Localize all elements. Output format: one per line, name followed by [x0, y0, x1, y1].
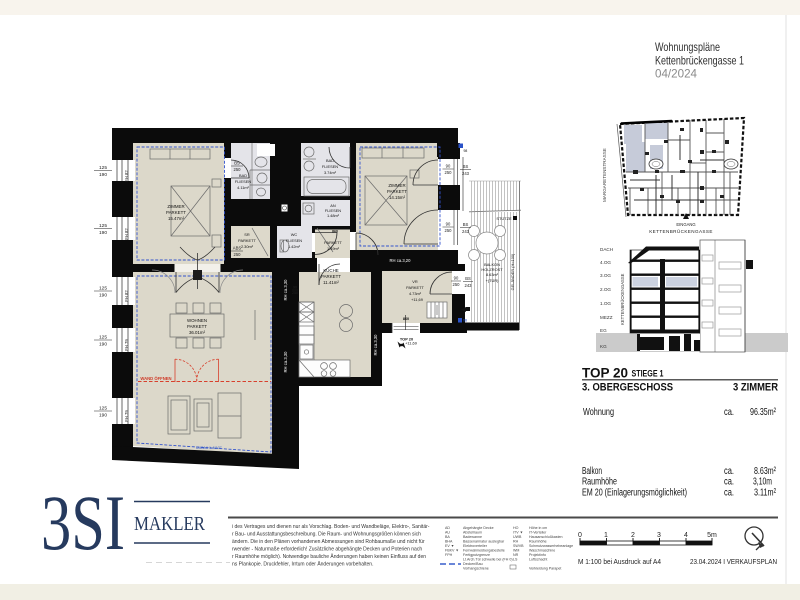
- svg-text:ZIMMER: ZIMMER: [388, 183, 405, 188]
- svg-text:Raumhöhe: Raumhöhe: [582, 477, 617, 488]
- svg-text:FLIESEN: FLIESEN: [235, 179, 251, 184]
- svg-text:PARKETT: PARKETT: [321, 274, 341, 279]
- svg-text:EV ▼: EV ▼: [445, 544, 454, 548]
- svg-text:WOHNEN: WOHNEN: [187, 318, 207, 323]
- svg-text:LS: LS: [513, 558, 518, 562]
- svg-text:4: 4: [684, 532, 688, 539]
- svg-text:243: 243: [462, 229, 470, 234]
- svg-text:Wohnungspläne: Wohnungspläne: [655, 40, 720, 54]
- svg-text:3. OBERGESCHOSS: 3. OBERGESCHOSS: [582, 382, 673, 394]
- svg-text:BAD: BAD: [239, 173, 247, 178]
- svg-text:23.04.2024 I VERKAUFSPLAN: 23.04.2024 I VERKAUFSPLAN: [690, 557, 777, 566]
- svg-text:1.OG: 1.OG: [600, 301, 611, 306]
- svg-text:KETTENBRÜCKENGASSE: KETTENBRÜCKENGASSE: [649, 228, 713, 234]
- svg-text:90: 90: [293, 286, 297, 290]
- svg-text:Decken/Bau: Decken/Bau: [463, 562, 483, 566]
- svg-text:PARKETT: PARKETT: [187, 324, 207, 329]
- svg-text:MEZZ: MEZZ: [600, 315, 613, 320]
- svg-text:UWB: UWB: [513, 535, 522, 539]
- svg-text:i des Vertrages und dienen nur: i des Vertrages und dienen nur als Vorsc…: [232, 524, 430, 530]
- svg-text:PARKETT: PARKETT: [406, 285, 424, 290]
- svg-text:243: 243: [462, 171, 470, 176]
- svg-text:Luftschacht: Luftschacht: [529, 558, 547, 562]
- svg-text:190: 190: [99, 172, 107, 178]
- svg-text:250: 250: [453, 282, 461, 287]
- svg-text:125: 125: [99, 286, 107, 292]
- svg-text:11.41m²: 11.41m²: [323, 280, 339, 285]
- svg-text:3.74m²: 3.74m²: [324, 170, 337, 175]
- svg-text:GELÄNDER (H=100): GELÄNDER (H=100): [510, 253, 515, 290]
- svg-text:UMBAU lt. MA37: UMBAU lt. MA37: [196, 446, 222, 450]
- svg-text:ändern. Die in den Plänen vorh: ändern. Die in den Plänen vorhandenen Ab…: [232, 539, 425, 545]
- svg-text:RH ca.3,30: RH ca.3,30: [373, 334, 378, 356]
- svg-text:ca.: ca.: [724, 466, 734, 477]
- svg-text:98: 98: [464, 149, 468, 153]
- svg-text:04/2024: 04/2024: [655, 67, 697, 81]
- svg-text:AD: AD: [445, 526, 450, 530]
- svg-text:ns Plankopie. Druckfehler, Irr: ns Plankopie. Druckfehler, Irrtum oder Ä…: [232, 561, 373, 568]
- svg-text:FH 82: FH 82: [124, 290, 129, 302]
- svg-text:8.63m²: 8.63m²: [754, 466, 776, 477]
- svg-text:3SI: 3SI: [41, 479, 125, 566]
- svg-text:EINGANG: EINGANG: [676, 222, 695, 227]
- svg-text:Bassenarmatur auslegbar: Bassenarmatur auslegbar: [463, 540, 505, 544]
- svg-text:MARGARETENSTRASSE: MARGARETENSTRASSE: [602, 148, 607, 202]
- svg-text:Wohnung: Wohnung: [583, 406, 614, 418]
- svg-text:ITV ▼: ITV ▼: [513, 531, 523, 535]
- svg-text:FH 79: FH 79: [124, 339, 129, 351]
- svg-text:125: 125: [99, 335, 107, 341]
- svg-text:250: 250: [234, 252, 242, 257]
- svg-text:ca.: ca.: [724, 477, 734, 488]
- svg-text:Hausanschlußkasten: Hausanschlußkasten: [529, 535, 563, 539]
- svg-text:3 ZIMMER: 3 ZIMMER: [733, 382, 778, 394]
- svg-text:860: 860: [403, 317, 409, 321]
- svg-text:BAD: BAD: [326, 158, 334, 163]
- svg-text:90: 90: [454, 276, 459, 281]
- svg-text:190: 190: [99, 413, 107, 419]
- svg-text:125: 125: [99, 406, 107, 412]
- svg-text:190: 190: [99, 293, 107, 299]
- svg-text:250: 250: [234, 167, 242, 172]
- svg-text:15.47m²: 15.47m²: [168, 216, 185, 221]
- svg-text:STÜTZE: STÜTZE: [496, 216, 512, 221]
- svg-text:90: 90: [446, 164, 451, 169]
- svg-text:r Raumhöhe möglich). Notwendig: r Raumhöhe möglich). Notwendige bauliche…: [232, 553, 426, 560]
- svg-text:FBKV ▼: FBKV ▼: [445, 549, 459, 553]
- svg-text:RH ca.3,30: RH ca.3,30: [283, 351, 288, 373]
- svg-text:ca.: ca.: [724, 406, 734, 418]
- svg-text:RH: RH: [513, 540, 519, 544]
- svg-text:90: 90: [446, 222, 451, 227]
- svg-text:BS: BS: [463, 164, 469, 169]
- svg-text:+(TÜR): +(TÜR): [486, 278, 500, 283]
- svg-text:0: 0: [578, 532, 582, 539]
- svg-text:EG: EG: [600, 328, 607, 333]
- svg-text:4.OG: 4.OG: [600, 260, 611, 265]
- svg-text:2.OG: 2.OG: [600, 287, 611, 292]
- svg-text:190: 190: [99, 342, 107, 348]
- svg-text:BS: BS: [463, 222, 469, 227]
- svg-text:r Bau- und Ausstattungsbeschre: r Bau- und Ausstattungsbeschreibung. Die…: [232, 532, 421, 538]
- svg-text:Badewanne: Badewanne: [463, 535, 482, 539]
- svg-text:4.73m²: 4.73m²: [409, 291, 422, 296]
- svg-text:PARKETT: PARKETT: [324, 240, 342, 245]
- svg-text:250: 250: [445, 228, 453, 233]
- svg-text:BA: BA: [445, 535, 450, 539]
- svg-text:RH ca.3,30: RH ca.3,30: [283, 279, 288, 301]
- svg-text:3.11m²: 3.11m²: [754, 488, 776, 499]
- svg-text:FH 82: FH 82: [124, 170, 129, 182]
- svg-text:125: 125: [99, 165, 107, 171]
- svg-text:+11,69: +11,69: [405, 341, 417, 346]
- svg-text:WC: WC: [291, 232, 298, 237]
- svg-text:FLIESEN: FLIESEN: [286, 238, 302, 243]
- svg-text:5m: 5m: [707, 532, 717, 539]
- svg-text:1.48m²: 1.48m²: [327, 213, 340, 218]
- svg-text:DACH: DACH: [600, 247, 613, 252]
- svg-text:Vorhangschiene: Vorhangschiene: [463, 567, 489, 571]
- svg-text:STIEGE 1: STIEGE 1: [632, 369, 664, 379]
- svg-text:Elektroverteiler: Elektroverteiler: [463, 544, 488, 548]
- svg-text:4.11m²: 4.11m²: [237, 185, 250, 190]
- svg-text:IT-Verteiler: IT-Verteiler: [529, 531, 547, 535]
- svg-text:TOP 20: TOP 20: [582, 366, 628, 381]
- svg-text:Fertigputzgrenze: Fertigputzgrenze: [463, 553, 490, 557]
- svg-text:2.30m²: 2.30m²: [241, 244, 254, 249]
- svg-text:0B: 0B: [463, 319, 468, 323]
- svg-text:Schmutzwasserhebeanlage: Schmutzwasserhebeanlage: [529, 544, 573, 548]
- svg-text:PARKETT: PARKETT: [166, 210, 186, 215]
- svg-text:FH 82: FH 82: [124, 228, 129, 240]
- svg-text:250: 250: [292, 291, 298, 295]
- svg-text:Fernwärmeübergabestelle: Fernwärmeübergabestelle: [463, 549, 505, 553]
- svg-text:Höhe in cm: Höhe in cm: [529, 526, 547, 530]
- svg-text:860: 860: [332, 230, 338, 234]
- svg-text:SWVB: SWVB: [513, 544, 524, 548]
- svg-text:Waschmaschine: Waschmaschine: [529, 549, 555, 553]
- svg-text:MAKLER: MAKLER: [134, 514, 205, 535]
- svg-text:PARKETT: PARKETT: [238, 238, 256, 243]
- svg-text:rwender - Naturmaße erforderli: rwender - Naturmaße erforderlich! Zusätz…: [232, 547, 422, 553]
- svg-text:Abstellraum: Abstellraum: [463, 531, 482, 535]
- svg-text:Projektinfo: Projektinfo: [529, 553, 546, 557]
- svg-text:FH 79: FH 79: [124, 410, 129, 422]
- svg-text:WAND ÖFFNEN: WAND ÖFFNEN: [140, 376, 171, 381]
- svg-text:ZIMMER: ZIMMER: [167, 204, 184, 209]
- svg-text:BS: BS: [234, 161, 240, 166]
- svg-text:WM: WM: [513, 549, 519, 553]
- svg-text:KETTENBRÜCKENGASSE: KETTENBRÜCKENGASSE: [620, 273, 625, 325]
- svg-text:PARKETT: PARKETT: [387, 189, 407, 194]
- svg-text:8.63m²: 8.63m²: [486, 272, 499, 277]
- svg-text:1.49m²: 1.49m²: [327, 246, 340, 251]
- svg-text:1.42m²: 1.42m²: [288, 244, 301, 249]
- svg-text:243: 243: [465, 283, 473, 288]
- svg-text:Lt.Arch.Tür schwelle bei (FH 0: Lt.Arch.Tür schwelle bei (FH 0): [463, 558, 513, 562]
- svg-text:RH ca.3,20: RH ca.3,20: [390, 258, 412, 263]
- svg-text:250: 250: [445, 170, 453, 175]
- svg-text:+11,69: +11,69: [411, 297, 423, 302]
- svg-text:3,10m: 3,10m: [753, 477, 772, 488]
- svg-text:BHA: BHA: [445, 540, 453, 544]
- svg-text:BS: BS: [465, 276, 471, 281]
- svg-text:3.OG: 3.OG: [600, 273, 611, 278]
- svg-text:1: 1: [604, 532, 608, 539]
- svg-text:Abgehängte Decke: Abgehängte Decke: [463, 526, 494, 530]
- svg-text:KG: KG: [600, 344, 607, 349]
- svg-text:AU: AU: [445, 531, 450, 535]
- svg-text:14.15m²: 14.15m²: [389, 195, 406, 200]
- svg-text:EM 20 (Einlagerungsmöglichkeit: EM 20 (Einlagerungsmöglichkeit): [582, 488, 687, 499]
- svg-text:ABS: ABS: [233, 246, 242, 251]
- svg-text:190: 190: [99, 230, 107, 236]
- svg-text:3: 3: [657, 532, 661, 539]
- svg-text:FPH: FPH: [445, 553, 453, 557]
- svg-text:ca.: ca.: [724, 488, 734, 499]
- svg-text:SR: SR: [244, 232, 250, 237]
- svg-text:Kettenbrückengasse 1: Kettenbrückengasse 1: [655, 54, 744, 68]
- svg-text:Raumhöhe: Raumhöhe: [529, 540, 547, 544]
- svg-text:36.01m²: 36.01m²: [189, 330, 206, 335]
- svg-text:VR: VR: [412, 279, 418, 284]
- svg-text:Balkon: Balkon: [582, 466, 602, 477]
- svg-text:NR: NR: [513, 553, 519, 557]
- svg-text:2: 2: [631, 532, 635, 539]
- svg-text:Verkleidung Parapet: Verkleidung Parapet: [529, 567, 561, 571]
- svg-text:125: 125: [99, 223, 107, 229]
- svg-text:M 1:100 bei Ausdruck auf A4: M 1:100 bei Ausdruck auf A4: [578, 557, 661, 566]
- svg-text:HO: HO: [513, 526, 519, 530]
- svg-text:KÜCHE: KÜCHE: [323, 268, 338, 273]
- svg-text:96.35m²: 96.35m²: [750, 406, 776, 418]
- svg-text:FLIESEN: FLIESEN: [322, 164, 338, 169]
